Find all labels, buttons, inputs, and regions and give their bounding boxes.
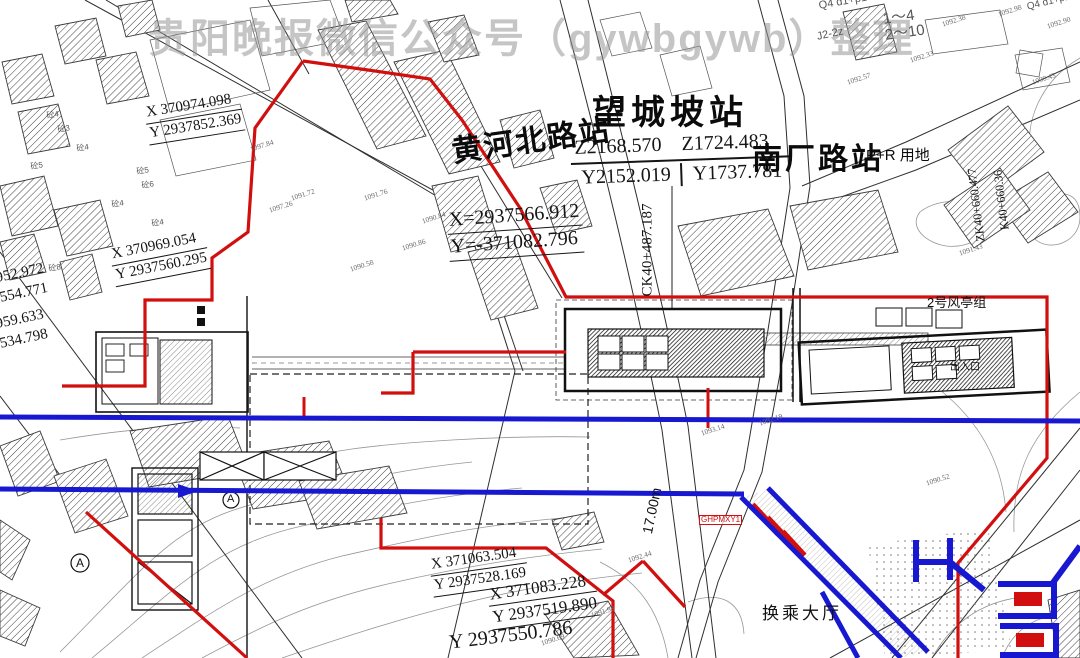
- material-mark: 砼4: [151, 218, 164, 228]
- spot-elevation: 1097.26: [268, 199, 293, 214]
- site-plan-map: 贵阳晚报微信公众号（gywbgywb）整理 望城坡站 Z2168.570 Z17…: [0, 0, 1080, 658]
- spot-elevation: 1091.72: [290, 187, 315, 202]
- material-mark: 砼4: [76, 143, 89, 153]
- map-label: Q4 d1+p1: [818, 0, 868, 12]
- map-label: 换乘大厅: [762, 605, 842, 622]
- spot-elevation: 1092.38: [941, 13, 966, 28]
- spot-elevation: 1092.90: [1046, 15, 1071, 30]
- spot-elevation: 1090.52: [925, 472, 950, 487]
- coordinate-label: X=2937566.912Y=-371082.796: [446, 199, 584, 262]
- map-label: Q4 d1+p1: [1026, 0, 1071, 13]
- material-mark: 砼4: [46, 110, 59, 120]
- spot-elevation: 1092.98: [997, 3, 1022, 18]
- map-label: A: [76, 557, 84, 569]
- spot-elevation: 1092.44: [627, 549, 652, 564]
- spot-elevation: 1093.14: [700, 422, 725, 437]
- coordinate-label: X 370974.098Y 2937852.369: [143, 89, 245, 145]
- material-mark: 砼5: [30, 161, 43, 171]
- material-mark: 砼3: [57, 124, 70, 134]
- spot-elevation: 1092.57: [846, 71, 871, 86]
- map-label: 2号风亭组: [927, 296, 986, 309]
- spot-elevation: 1090.86: [401, 237, 426, 252]
- spot-elevation: 1092.19: [758, 412, 783, 427]
- spot-elevation: 1097.84: [249, 138, 274, 153]
- map-label: GHPMXY1: [699, 515, 742, 525]
- chainage-label: K40+660.36: [991, 169, 1010, 230]
- map-label: 出入口: [950, 363, 980, 373]
- material-mark: 砼4: [111, 199, 124, 209]
- map-label: A: [227, 494, 234, 505]
- coordinate-label: 959.633534.798: [0, 305, 52, 355]
- spot-elevation: 1092.33: [909, 49, 934, 64]
- annotation-layer: X 370974.098Y 2937852.369X=2937566.912Y=…: [0, 0, 1080, 658]
- material-mark: 砼5: [136, 166, 149, 176]
- spot-elevation: 1091.76: [363, 187, 388, 202]
- chainage-label: ZK40+660.477: [966, 168, 987, 243]
- spot-elevation: 1091.43: [958, 242, 983, 257]
- coordinate-label: X 370969.054Y 2937560.295: [108, 228, 211, 287]
- map-label: 17.00m: [640, 486, 663, 535]
- spot-elevation: 1090.84: [421, 210, 446, 225]
- material-mark: 砼6: [141, 180, 154, 190]
- spot-elevation: 1090.43: [1031, 71, 1056, 86]
- map-label: J2-2z: [816, 26, 845, 42]
- chainage-label: CK40+487.187: [641, 203, 656, 296]
- coordinate-label: 952.972554.771: [0, 259, 52, 309]
- material-mark: 砼8: [48, 263, 61, 273]
- map-label: 2～10: [884, 22, 926, 42]
- spot-elevation: 1090.58: [349, 258, 374, 273]
